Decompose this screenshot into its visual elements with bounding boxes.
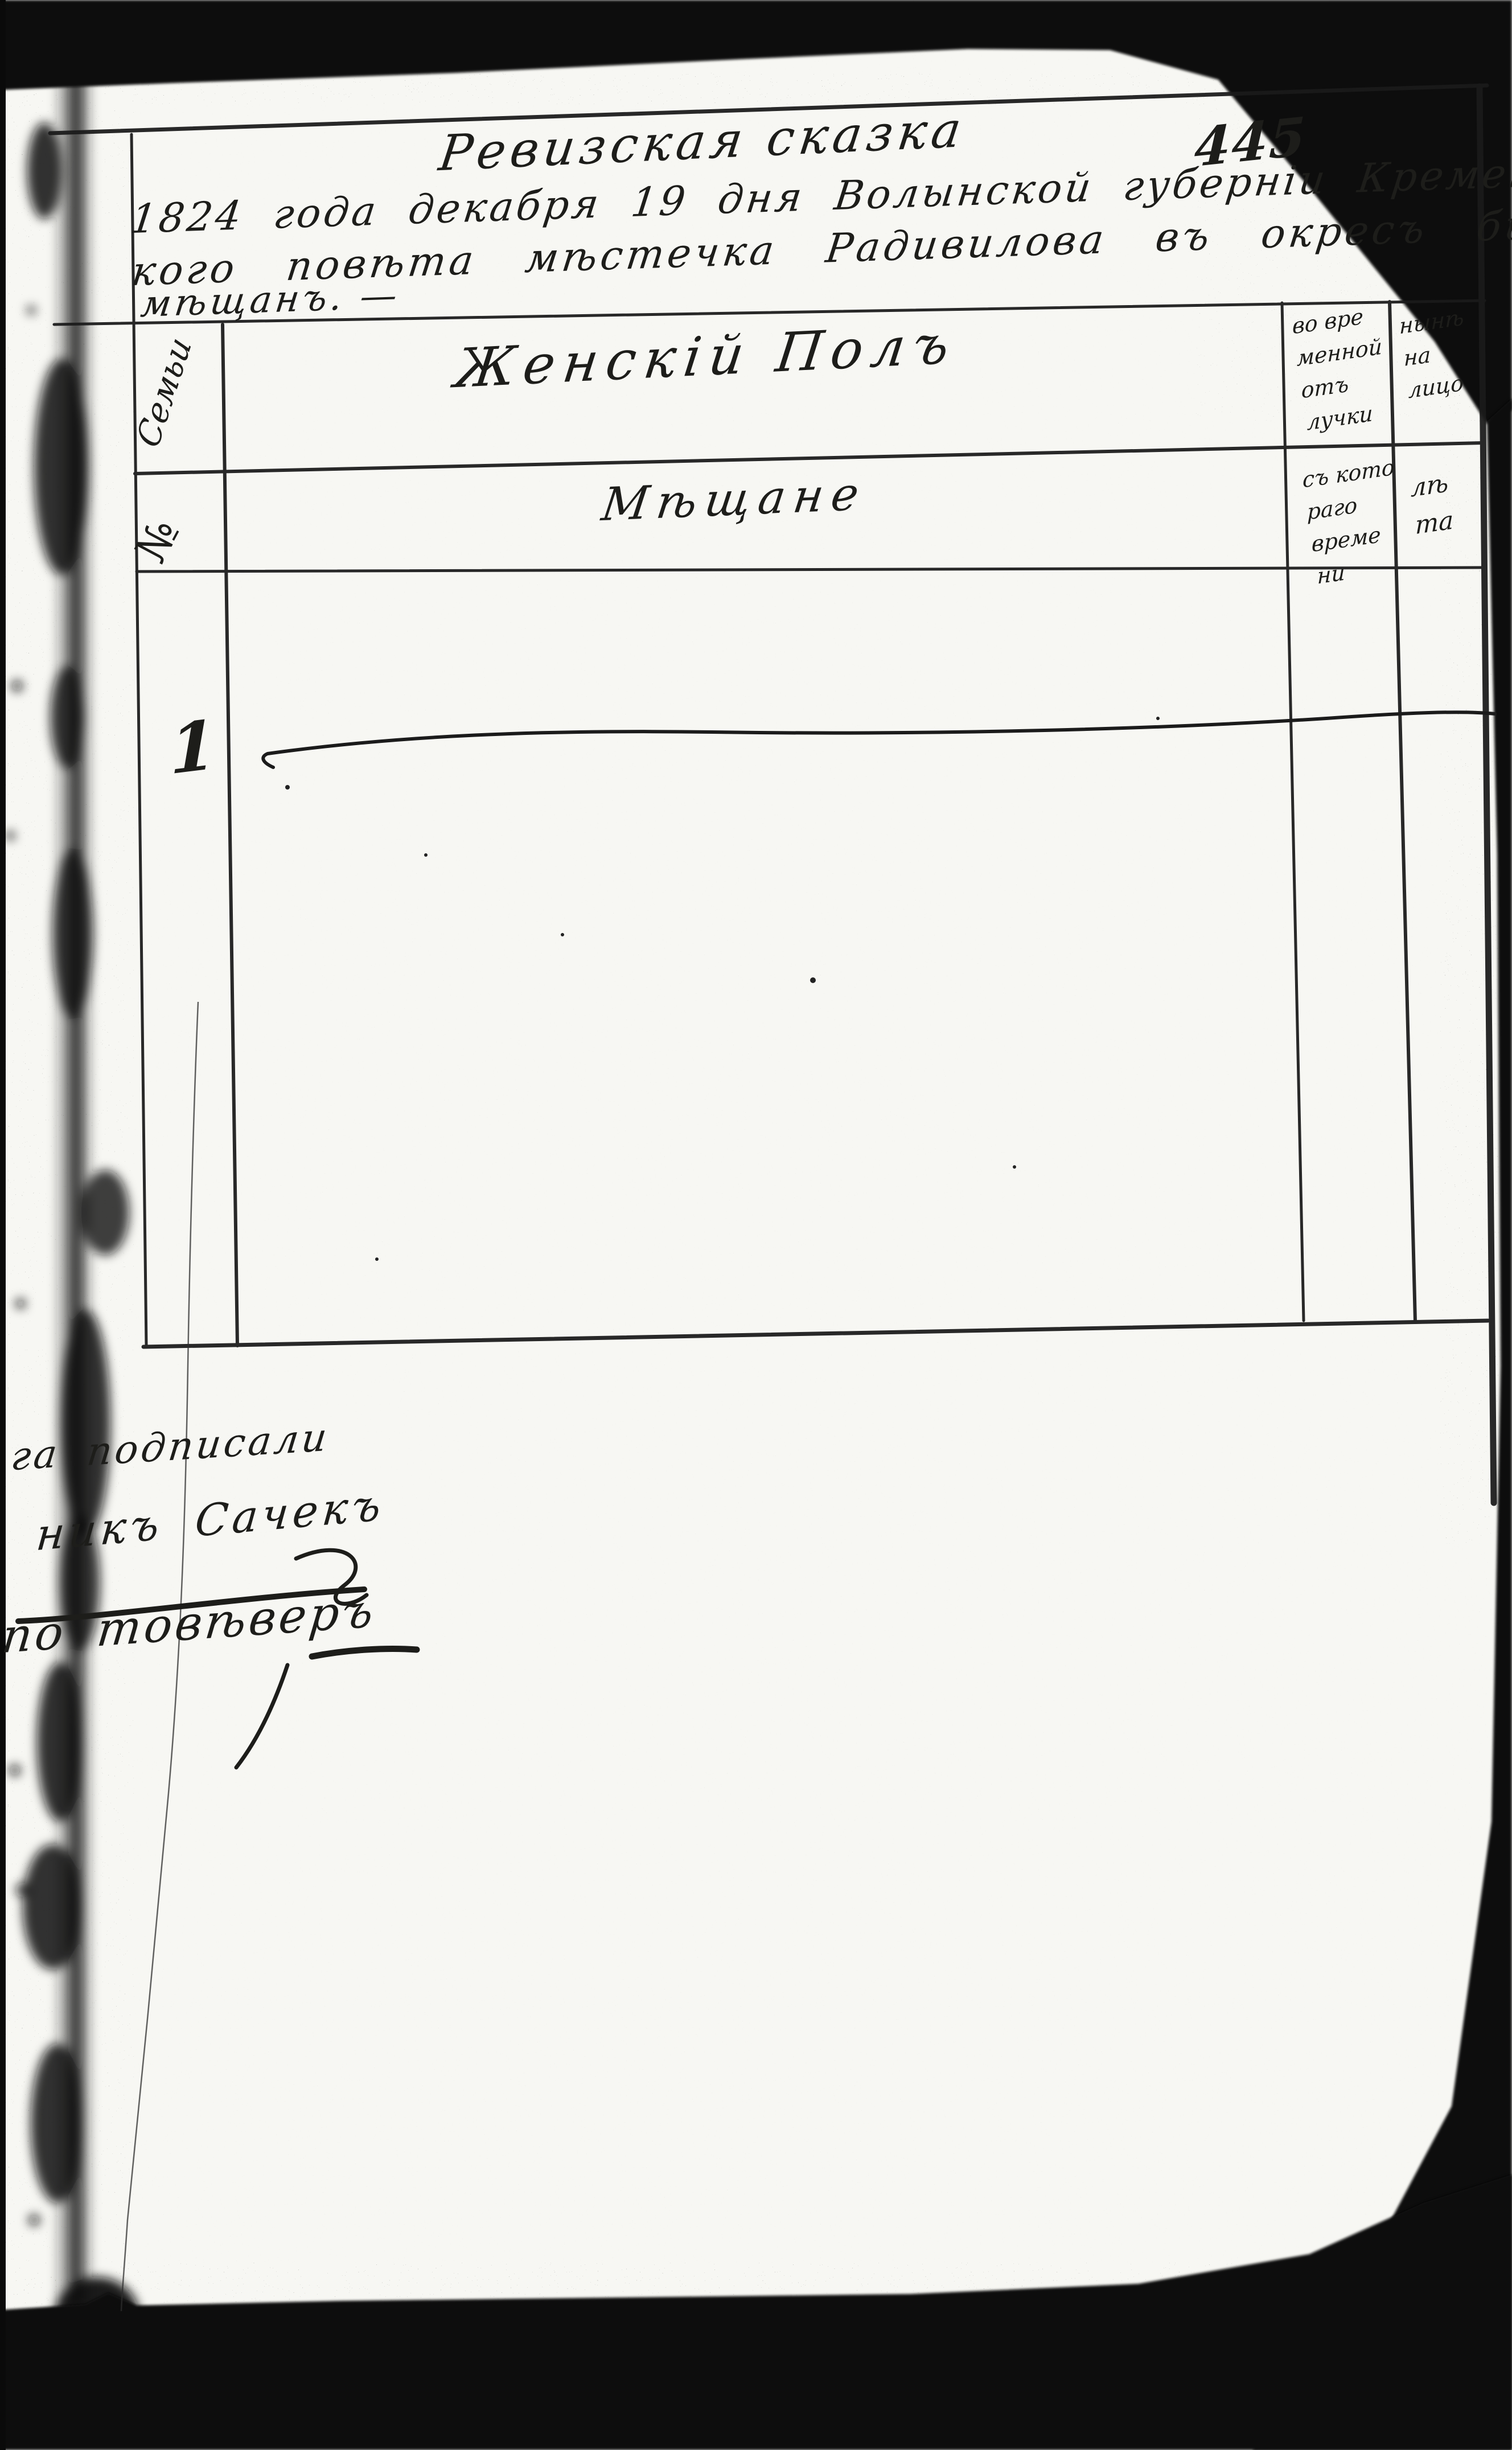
signature-flourishes (18, 1550, 417, 1767)
binding-gutter-strip (6, 74, 139, 2357)
family-column-vertical-label: Семьи (124, 314, 205, 470)
signature-line-2: никъ Сачекъ (34, 1479, 387, 1561)
age-subheader-line: лѣ (1411, 463, 1453, 507)
entry-row-number: 1 (169, 705, 217, 790)
present-column-header: нынѣ на лицо (1399, 301, 1464, 409)
left-scan-edge (0, 0, 6, 2450)
absence-column-line (1282, 303, 1304, 1321)
signature-line-1: га подписали (9, 1415, 332, 1479)
present-header-line: лицо (1408, 367, 1464, 407)
table-bottom-border (143, 1321, 1488, 1347)
absence-column-header: во вре менной отъ лучки (1292, 298, 1382, 441)
age-subheader-line: та (1415, 501, 1453, 545)
estate-row-divider (137, 568, 1482, 572)
ink-specks (285, 717, 1160, 1261)
family-column-line (223, 324, 237, 1346)
age-subheader: лѣ та (1411, 463, 1453, 545)
scanned-revision-list-page: 445 Ревизская сказка 1824 года декабря 1… (0, 0, 1512, 2450)
sex-section-header: Женскій Полъ (451, 314, 960, 401)
bottom-scan-band (0, 2174, 1512, 2450)
family-number-symbol: № (125, 511, 189, 570)
signature-line-3: по товѣверъ (0, 1584, 379, 1664)
right-scan-edge (1252, 398, 1512, 2450)
entry-row-dash-stroke (263, 712, 1495, 767)
paper-crease (121, 1002, 198, 2311)
absence-since-subheader: съ кото раго време ни (1303, 451, 1395, 595)
table-right-border (1480, 87, 1494, 1503)
estate-header: Мѣщане (599, 467, 870, 531)
